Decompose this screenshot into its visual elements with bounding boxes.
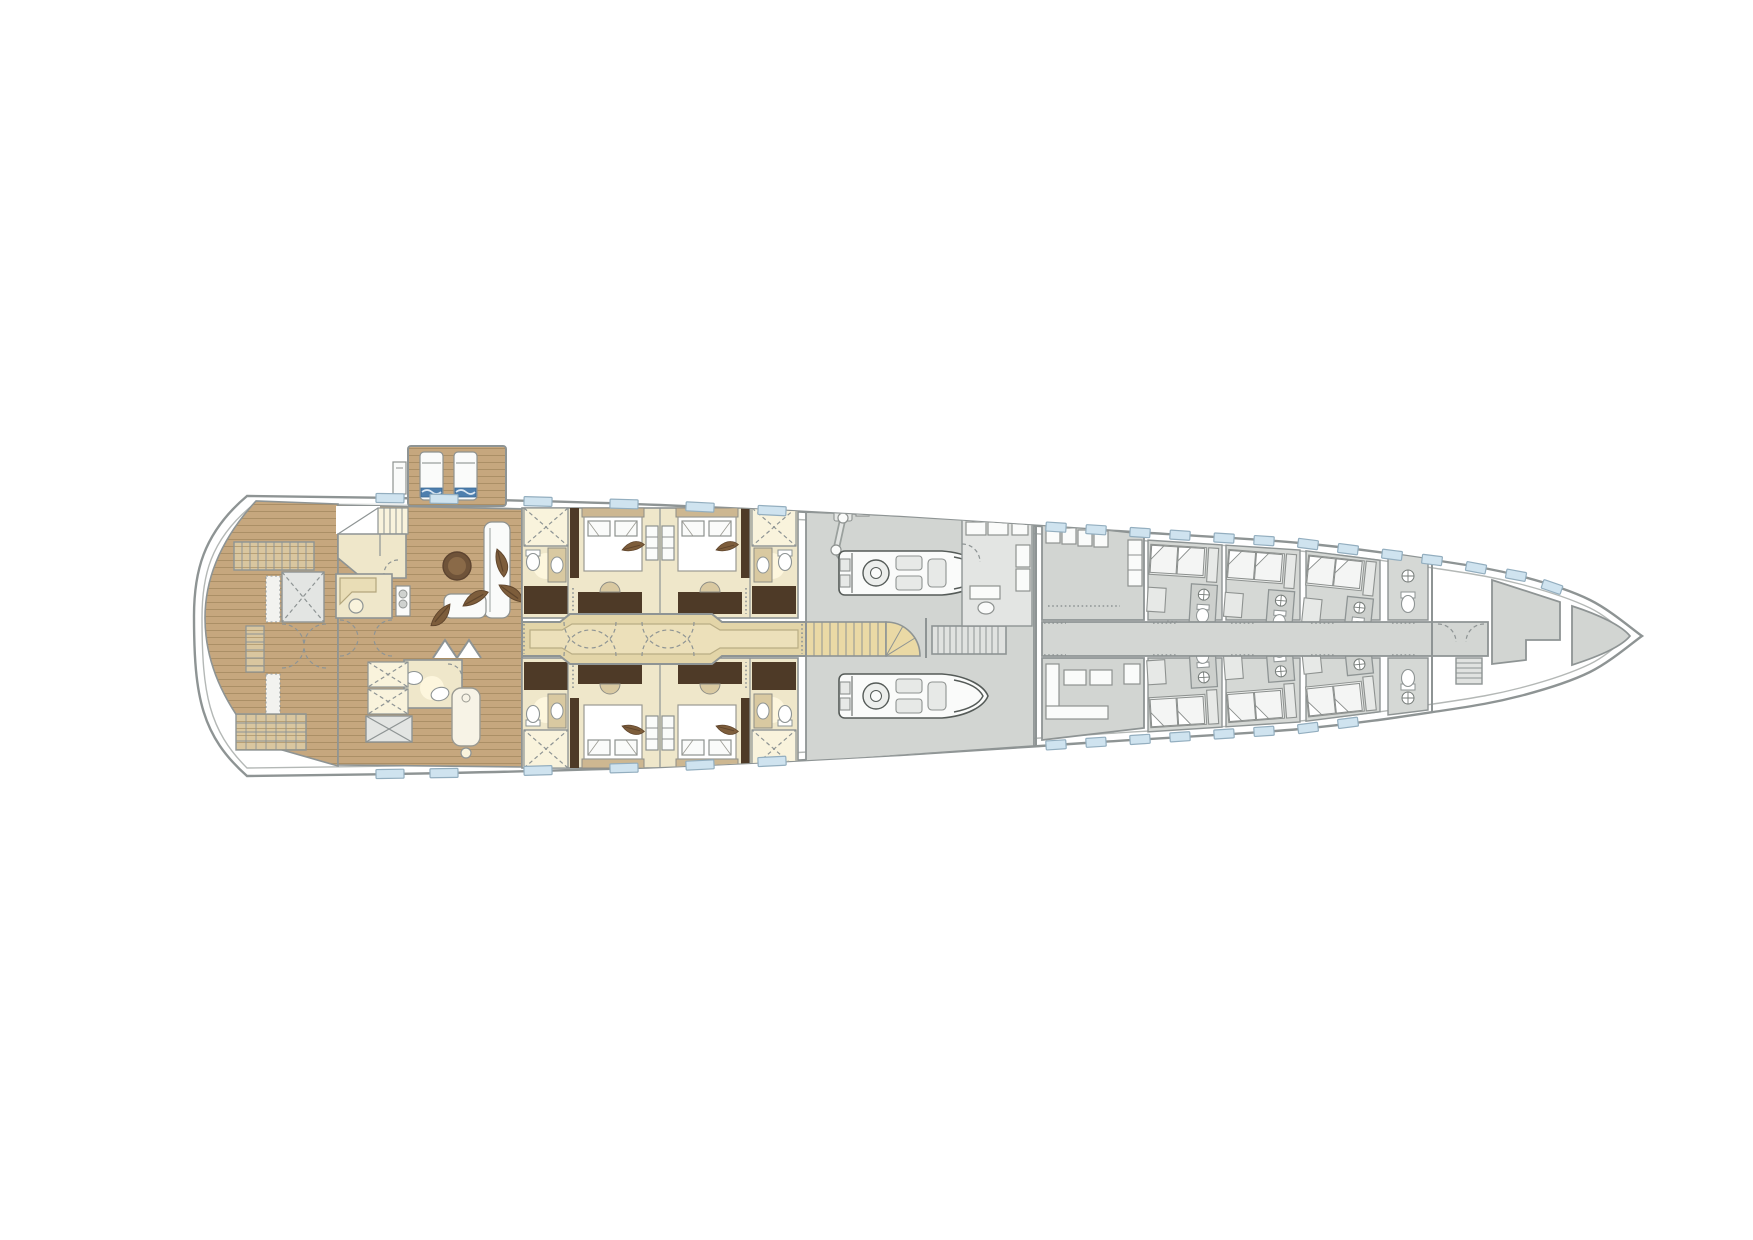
sun-lounger <box>454 452 477 500</box>
guest-corridor <box>522 614 806 664</box>
window <box>1046 740 1067 750</box>
window <box>610 763 638 773</box>
desk <box>970 586 1000 599</box>
crew-cabin <box>1146 647 1222 732</box>
chair <box>978 602 994 614</box>
upper-stair <box>378 508 408 534</box>
technical-shaft <box>266 576 280 622</box>
crew-staircase <box>932 626 1006 654</box>
window <box>686 502 714 512</box>
window <box>524 766 552 776</box>
pillow <box>709 521 731 536</box>
window <box>1338 717 1359 728</box>
window <box>376 769 404 778</box>
wardrobe <box>524 586 568 614</box>
massage-table <box>452 688 480 746</box>
garage-office <box>962 518 1032 626</box>
window <box>1086 737 1107 747</box>
joinery-wall <box>741 508 750 578</box>
pillow <box>682 521 704 536</box>
deck-plan-canvas <box>0 0 1753 1240</box>
window <box>430 768 458 777</box>
boarding-ladder <box>246 626 264 672</box>
lounge-and-spa <box>336 505 523 767</box>
guest-cabin-row <box>522 508 798 618</box>
corridor-floor <box>1042 622 1488 656</box>
window <box>758 505 786 515</box>
tender <box>839 674 988 718</box>
sofa <box>1046 706 1108 719</box>
window <box>1298 538 1319 549</box>
crew-cabin <box>1223 545 1300 631</box>
window <box>430 494 458 503</box>
crew-cabin <box>1146 540 1222 625</box>
deck-box <box>393 462 406 494</box>
window <box>1086 525 1107 535</box>
window <box>524 497 552 507</box>
window <box>1382 549 1403 560</box>
double-bed <box>676 508 739 571</box>
guest-staircase <box>806 622 920 656</box>
desk <box>678 592 742 614</box>
deck-plan-page: Motor yacht lower deck — general arrange… <box>0 0 1753 1240</box>
window <box>1214 729 1235 739</box>
window <box>1298 722 1319 733</box>
pillow <box>588 521 610 536</box>
double-bed <box>582 508 645 571</box>
table <box>1064 670 1086 685</box>
window <box>758 756 786 766</box>
stool <box>349 599 363 613</box>
sink <box>757 557 769 573</box>
window <box>1170 530 1191 540</box>
stool <box>461 748 471 758</box>
window <box>376 493 404 502</box>
bow-stair <box>1456 658 1482 684</box>
dresser <box>662 526 674 560</box>
window <box>1214 533 1235 543</box>
window <box>1422 554 1443 565</box>
window <box>1254 536 1275 546</box>
window <box>686 760 714 770</box>
pillow <box>615 521 637 536</box>
joinery-wall <box>570 508 579 578</box>
window <box>610 499 638 509</box>
dresser <box>646 526 658 560</box>
desk <box>578 592 642 614</box>
table <box>1090 670 1112 685</box>
window <box>1254 726 1275 736</box>
window <box>1338 543 1359 554</box>
sun-lounger <box>420 452 443 500</box>
window <box>1130 527 1151 537</box>
wardrobe <box>752 586 796 614</box>
window <box>1046 522 1067 532</box>
tender-garage <box>806 507 1034 762</box>
guest-cabin-row-mirrored <box>522 658 798 768</box>
sink <box>551 557 563 573</box>
window <box>1170 732 1191 742</box>
window <box>1130 734 1151 744</box>
